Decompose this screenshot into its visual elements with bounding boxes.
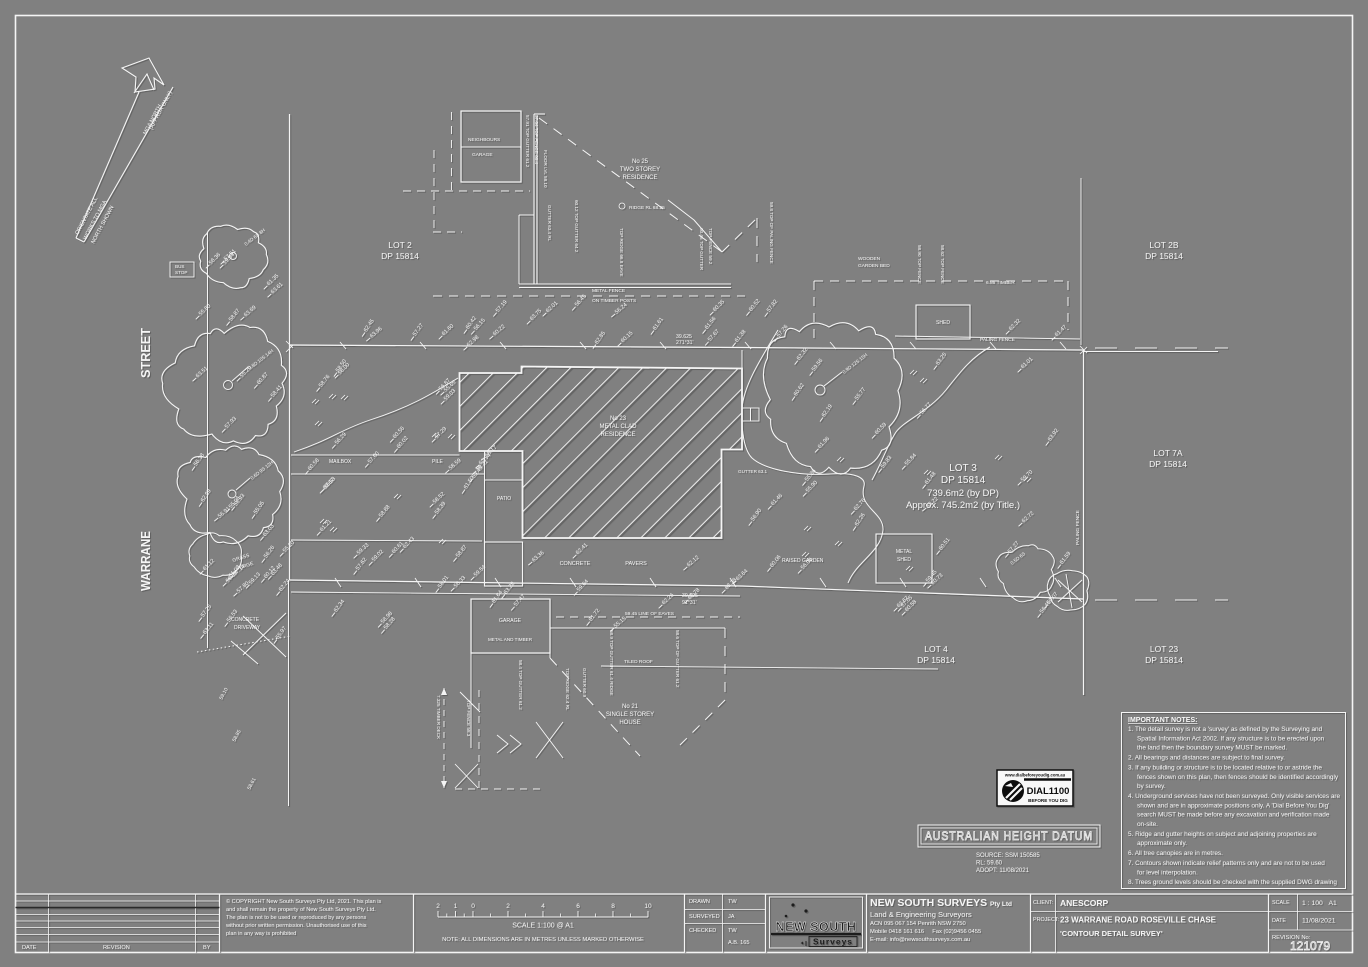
svg-text:DP 15814: DP 15814 [1145,251,1183,261]
svg-text:for level interpolation.: for level interpolation. [1137,869,1198,876]
svg-text:8: 8 [611,903,615,910]
svg-text:1: 1 [454,903,458,910]
svg-text:GUTTER 60.9: GUTTER 60.9 [582,668,587,698]
svg-text:DP 15814: DP 15814 [941,475,986,486]
svg-text:5. Ridge and gutter heights on: 5. Ridge and gutter heights on subject a… [1128,831,1317,838]
svg-text:23 WARRANE ROAD ROSEVILLE CHAS: 23 WARRANE ROAD ROSEVILLE CHASE [1060,916,1217,925]
svg-text:Spatial Information Act 2002.: Spatial Information Act 2002. If any str… [1137,735,1325,742]
svg-text:METAL: METAL [896,549,913,555]
svg-text:GUTTER 63.1: GUTTER 63.1 [738,469,768,474]
svg-text:SINGLE STOREY: SINGLE STOREY [606,712,654,718]
svg-text:BY: BY [203,945,211,951]
svg-text:HOUSE: HOUSE [619,720,640,726]
svg-text:58.9 TOP GUTTER 61.4 RIDGE: 58.9 TOP GUTTER 61.4 RIDGE [609,630,614,696]
svg-text:WOODEN: WOODEN [858,256,881,262]
svg-text:7.325 TIMBER DECK: 7.325 TIMBER DECK [436,695,441,740]
svg-text:fences shown on this plan, the: fences shown on this plan, then fences s… [1137,774,1339,781]
svg-text:1 : 100 A1: 1 : 100 A1 [1302,900,1337,907]
svg-text:BEFORE YOU DIG: BEFORE YOU DIG [1028,798,1068,803]
svg-text:ANESCORP: ANESCORP [1060,898,1109,908]
svg-text:CONCRETE: CONCRETE [560,561,591,567]
svg-text:2: 2 [506,903,510,910]
svg-text:✦||: ✦|| [800,940,807,947]
svg-text:DP 15814: DP 15814 [1149,459,1187,469]
svg-text:LOT 2B: LOT 2B [1149,240,1178,250]
svg-text:DRIVEWAY: DRIVEWAY [234,625,261,631]
svg-text:The plan is not to be used or: The plan is not to be used or reproduced… [226,915,366,921]
svg-text:PILE: PILE [432,459,444,465]
svg-text:2: 2 [436,903,440,910]
svg-text:PALING FENCE: PALING FENCE [1075,510,1081,545]
svg-text:121079: 121079 [1290,939,1330,953]
svg-text:WARRANE: WARRANE [138,531,153,591]
svg-text:SHED: SHED [897,557,911,563]
svg-text:58.62 TOP FENCE: 58.62 TOP FENCE [940,245,945,284]
svg-text:SOURCE: SSM 150585: SOURCE: SSM 150585 [976,853,1040,859]
svg-text:NOTE: ALL DIMENSIONS ARE IN: NOTE: ALL DIMENSIONS ARE IN METRES UNLES… [442,937,644,943]
svg-text:2. All bearings and distances: 2. All bearings and distances are subjec… [1128,755,1285,762]
svg-text:DP 15814: DP 15814 [1145,655,1183,665]
svg-text:PAVERS: PAVERS [625,561,647,567]
svg-text:E-mail: info@newsouthsurveys.c: E-mail: info@newsouthsurveys.com.au [870,937,970,943]
svg-text:NEW SOUTH: NEW SOUTH [776,920,857,934]
svg-text:© COPYRIGHT New South Survey: © COPYRIGHT New South Surveys Pty Ltd, 2… [226,898,382,905]
svg-text:A.B. 165: A.B. 165 [728,940,749,946]
svg-text:TWO STOREY: TWO STOREY [620,167,660,173]
svg-text:10: 10 [644,903,652,910]
svg-text:TOP RIDGE 66.8 EAVE: TOP RIDGE 66.8 EAVE [619,228,624,277]
svg-text:TOP FENCE 59.2: TOP FENCE 59.2 [708,228,713,265]
svg-text:LOT 7A: LOT 7A [1153,448,1182,458]
svg-text:plan in any way is prohibited: plan in any way is prohibited [226,931,296,937]
svg-text:739.6m2 (by DP): 739.6m2 (by DP) [927,488,999,499]
svg-text:60.12 TOP GUTTER 64.2: 60.12 TOP GUTTER 64.2 [574,200,579,253]
svg-text:CHECKED: CHECKED [689,928,716,934]
svg-text:GARDEN BED: GARDEN BED [858,263,890,269]
svg-text:58.4 TOP GUTTER 61.2: 58.4 TOP GUTTER 61.2 [518,660,523,710]
svg-text:GARAGE: GARAGE [472,152,493,158]
svg-text:LOT 2: LOT 2 [388,240,412,250]
svg-text:Mobile 0418 161 616 Fax: Mobile 0418 161 616 Fax (02)9456 0455 [870,929,981,935]
svg-text:PROJECT:: PROJECT: [1033,917,1059,923]
svg-text:MAILBOX: MAILBOX [329,459,352,465]
svg-text:www.dialbeforeyoudig.com.au: www.dialbeforeyoudig.com.au [1004,773,1066,778]
svg-text:RIDGE RL 68.25: RIDGE RL 68.25 [629,205,665,211]
svg-text:GUTTER 63.4 RL: GUTTER 63.4 RL [547,205,552,242]
svg-text:RESIDENCE: RESIDENCE [622,175,657,181]
svg-text:'CONTOUR DETAIL SURVEY': 'CONTOUR DETAIL SURVEY' [1060,929,1163,938]
svg-text:STOP: STOP [175,270,187,275]
svg-text:60.45 TOP GUTTER: 60.45 TOP GUTTER [699,228,704,271]
svg-text:59.8 TOP OF PALING FENCE: 59.8 TOP OF PALING FENCE [769,202,774,264]
svg-text:shown and are in approximate: shown and are in approximate positions o… [1137,802,1329,809]
svg-text:METAL CLAD: METAL CLAD [599,424,637,430]
svg-text:REVISION: REVISION [103,945,130,951]
svg-text:0: 0 [471,903,475,910]
svg-text:CLIENT:: CLIENT: [1033,900,1053,906]
svg-text:LOT 4: LOT 4 [924,644,948,654]
svg-text:the land then the boundary sur: the land then the boundary survey MUST b… [1137,745,1287,752]
svg-text:on-site.: on-site. [1137,821,1158,828]
svg-text:IMPORTANT NOTES:: IMPORTANT NOTES: [1128,717,1197,724]
svg-text:NEIGHBOURS: NEIGHBOURS [468,137,500,143]
svg-text:11/08/2021: 11/08/2021 [1302,918,1336,925]
svg-text:SCALE 1:100 @ A1: SCALE 1:100 @ A1 [512,923,574,930]
svg-text:DP 15814: DP 15814 [381,251,419,261]
svg-text:TOP FENCE 58.3: TOP FENCE 58.3 [466,700,471,737]
svg-text:TW: TW [728,928,737,934]
svg-text:CONCRETE: CONCRETE [231,617,260,623]
svg-text:DRAWN: DRAWN [689,899,710,905]
svg-text:TOP RIDGE 62.4 RL: TOP RIDGE 62.4 RL [565,668,570,711]
svg-text:AUSTRALIAN HEIGHT DATUM: AUSTRALIAN HEIGHT DATUM [925,831,1093,843]
svg-text:TILED ROOF: TILED ROOF [624,659,653,665]
svg-text:3. If any building or structur: 3. If any building or structure is to be… [1128,764,1322,771]
svg-text:ADOPT: 11/08/2021: ADOPT: 11/08/2021 [976,868,1030,874]
svg-text:59.45 LINE OF EAVES: 59.45 LINE OF EAVES [625,611,674,617]
svg-text:8. Trees ground levels should: 8. Trees ground levels should be checked… [1128,879,1337,886]
svg-text:GARAGE: GARAGE [499,618,522,624]
svg-text:DP 15814: DP 15814 [917,655,955,665]
svg-text:LOT 3: LOT 3 [949,463,977,474]
svg-text:RESIDENCE: RESIDENCE [600,432,635,438]
svg-text:6.86 TIMBER: 6.86 TIMBER [986,280,1015,286]
svg-text:No 21: No 21 [622,704,639,710]
svg-text:ON TIMBER POSTS: ON TIMBER POSTS [592,298,636,304]
svg-text:57.91 TOP GUTTER 61.2: 57.91 TOP GUTTER 61.2 [525,115,530,168]
svg-text:FLOOR LVL 58.10: FLOOR LVL 58.10 [543,150,548,188]
svg-text:7. Contours shown indicate rel: 7. Contours shown indicate relief patter… [1128,860,1325,867]
svg-text:PATIO: PATIO [497,496,511,502]
svg-text:No 25: No 25 [632,159,649,165]
svg-text:DIAL1100: DIAL1100 [1027,786,1070,797]
svg-text:ACN 095 067 154 Penrith NSW: ACN 095 067 154 Penrith NSW 2750 [870,921,966,927]
svg-text:METAL AND TIMBER: METAL AND TIMBER [488,637,533,642]
svg-text:approximate only.: approximate only. [1137,840,1187,847]
svg-text:search MUST be made before an: search MUST be made before any excavatio… [1137,812,1330,819]
svg-text:TW: TW [728,899,737,905]
svg-text:LOT 23: LOT 23 [1150,644,1178,654]
svg-text:RL: 59.60: RL: 59.60 [976,861,1003,867]
svg-text:SHED: SHED [936,320,950,326]
svg-text:6: 6 [576,903,580,910]
svg-text:6. All tree canopies are in me: 6. All tree canopies are in metres. [1128,850,1223,857]
svg-text:METAL FENCE: METAL FENCE [592,288,625,294]
svg-text:4: 4 [541,903,545,910]
svg-text:58.90 TOP FENCE: 58.90 TOP FENCE [917,245,922,284]
svg-text:Land & Engineering Surveyors: Land & Engineering Surveyors [870,910,972,919]
svg-text:DATE: DATE [1272,918,1286,924]
svg-text:without prior written permissi: without prior written permission. Unauth… [225,923,367,929]
svg-text:JA: JA [728,914,735,920]
svg-text:Approx. 745.2m2 (by Title.): Approx. 745.2m2 (by Title.) [906,500,1020,511]
svg-text:91°31': 91°31' [682,600,697,606]
svg-text:and shall remain the property: and shall remain the property of New Sou… [226,907,376,913]
svg-text:271°31': 271°31' [676,340,694,346]
svg-text:SURVEYED: SURVEYED [689,914,720,920]
svg-text:STREET: STREET [138,328,153,378]
svg-text:by survey.: by survey. [1137,783,1166,790]
svg-text:DATE: DATE [22,945,37,951]
svg-text:Surveys: Surveys [813,937,853,947]
svg-text:SCALE: SCALE [1272,900,1290,906]
svg-text:BUS: BUS [175,264,184,269]
svg-text:4. Underground services have n: 4. Underground services have not been su… [1128,793,1341,800]
svg-text:1. The detail survey is not a: 1. The detail survey is not a 'survey' a… [1128,726,1323,733]
svg-text:58.6 TOP OF GUTTER 61.2: 58.6 TOP OF GUTTER 61.2 [675,630,680,688]
svg-text:No 23: No 23 [610,416,627,422]
